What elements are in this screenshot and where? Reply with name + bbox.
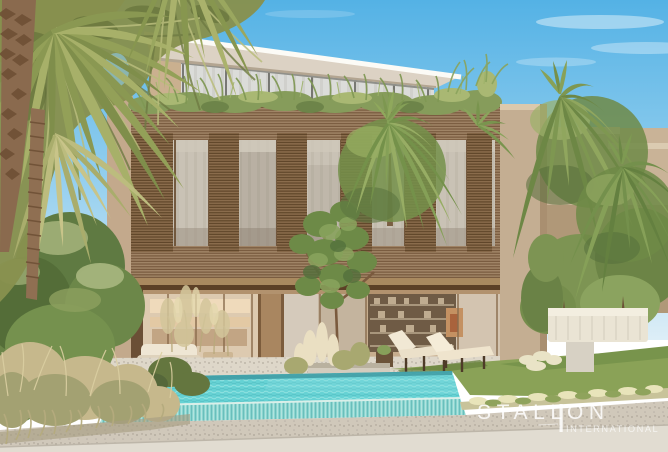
svg-text:INTERNATIONAL: INTERNATIONAL: [566, 424, 659, 434]
svg-text:STALL: STALL: [477, 401, 568, 424]
svg-text:ON: ON: [567, 401, 610, 424]
